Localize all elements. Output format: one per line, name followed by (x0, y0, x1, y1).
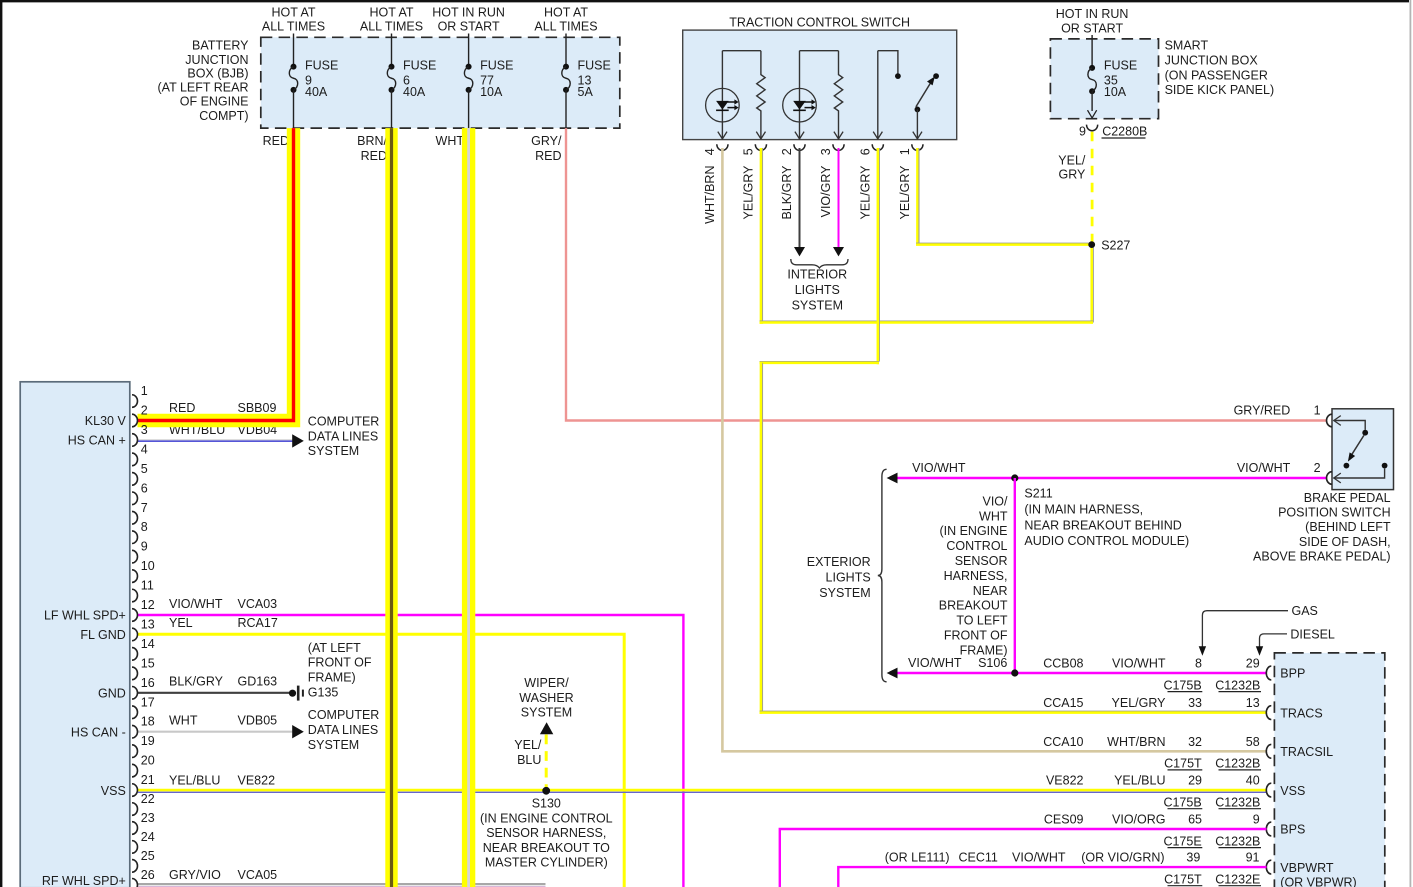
svg-text:3: 3 (819, 148, 833, 155)
svg-text:C2280B: C2280B (1102, 124, 1147, 138)
svg-text:(BEHIND LEFT: (BEHIND LEFT (1305, 520, 1391, 534)
svg-text:5A: 5A (578, 85, 594, 99)
svg-text:BPS: BPS (1280, 823, 1305, 837)
svg-text:15: 15 (141, 656, 155, 670)
svg-text:10A: 10A (480, 85, 503, 99)
svg-text:LF WHL SPD+: LF WHL SPD+ (44, 609, 126, 623)
svg-text:5: 5 (141, 462, 148, 476)
svg-text:SENSOR: SENSOR (955, 554, 1008, 568)
svg-text:G135: G135 (308, 685, 339, 699)
svg-text:SIDE KICK PANEL): SIDE KICK PANEL) (1165, 83, 1275, 97)
svg-text:VIO/WHT: VIO/WHT (1112, 657, 1166, 671)
svg-text:C1232B: C1232B (1215, 678, 1260, 692)
svg-text:WHT: WHT (979, 509, 1008, 523)
svg-text:C1232B: C1232B (1215, 757, 1260, 771)
svg-text:58: 58 (1246, 735, 1260, 749)
svg-text:MASTER CYLINDER): MASTER CYLINDER) (485, 856, 608, 870)
svg-text:FL GND: FL GND (80, 628, 125, 642)
svg-text:40A: 40A (305, 85, 328, 99)
svg-text:AUDIO CONTROL MODULE): AUDIO CONTROL MODULE) (1024, 534, 1189, 548)
svg-text:KL30 V: KL30 V (85, 414, 127, 428)
svg-text:C1232E: C1232E (1215, 872, 1260, 886)
svg-text:16: 16 (141, 676, 155, 690)
svg-text:VIO/WHT: VIO/WHT (1237, 461, 1291, 475)
svg-text:2: 2 (780, 148, 794, 155)
svg-text:11: 11 (141, 579, 154, 593)
svg-text:YEL/GRY: YEL/GRY (859, 165, 873, 220)
svg-text:INTERIOR: INTERIOR (787, 267, 847, 281)
svg-text:GRY/VIO: GRY/VIO (169, 868, 221, 882)
svg-text:NEAR: NEAR (973, 584, 1008, 598)
svg-text:TRACSIL: TRACSIL (1280, 745, 1333, 759)
svg-text:FUSE: FUSE (578, 58, 611, 72)
svg-text:JUNCTION: JUNCTION (185, 53, 248, 67)
svg-text:40: 40 (1246, 774, 1260, 788)
svg-text:(IN ENGINE: (IN ENGINE (939, 524, 1007, 538)
svg-text:SMART: SMART (1165, 39, 1209, 53)
svg-text:RCA17: RCA17 (238, 616, 278, 630)
svg-text:SYSTEM: SYSTEM (819, 586, 870, 600)
svg-text:(OR VIO/GRN): (OR VIO/GRN) (1081, 851, 1164, 865)
svg-text:(OR LE111): (OR LE111) (885, 851, 950, 865)
svg-text:COMPUTER: COMPUTER (308, 415, 380, 429)
svg-text:21: 21 (141, 773, 155, 787)
svg-text:WIPER/: WIPER/ (524, 676, 569, 690)
svg-text:CES09: CES09 (1044, 813, 1084, 827)
svg-text:VCA05: VCA05 (238, 868, 278, 882)
svg-text:23: 23 (141, 811, 155, 825)
svg-text:(AT LEFT REAR: (AT LEFT REAR (158, 81, 249, 95)
svg-text:14: 14 (141, 637, 155, 651)
svg-text:40A: 40A (403, 85, 426, 99)
svg-text:18: 18 (141, 715, 155, 729)
svg-text:6: 6 (859, 148, 873, 155)
svg-text:HOT AT: HOT AT (272, 5, 316, 19)
svg-text:S211: S211 (1024, 487, 1052, 501)
svg-text:VIO/WHT: VIO/WHT (912, 461, 966, 475)
svg-text:RF WHL SPD+: RF WHL SPD+ (42, 874, 126, 887)
svg-text:(AT LEFT: (AT LEFT (308, 641, 361, 655)
svg-text:RED: RED (361, 149, 387, 163)
svg-text:1: 1 (1314, 404, 1321, 418)
svg-text:9: 9 (1253, 813, 1260, 827)
svg-text:YEL/: YEL/ (1058, 153, 1086, 167)
svg-text:4: 4 (703, 148, 717, 155)
svg-text:C175E: C175E (1163, 834, 1201, 848)
svg-text:YEL: YEL (169, 616, 193, 630)
svg-text:32: 32 (1188, 735, 1202, 749)
svg-text:HS CAN +: HS CAN + (68, 434, 126, 448)
svg-text:SIDE OF DASH,: SIDE OF DASH, (1299, 535, 1391, 549)
svg-text:C175B: C175B (1163, 678, 1201, 692)
svg-text:2: 2 (1314, 461, 1321, 475)
svg-text:CCA10: CCA10 (1043, 735, 1083, 749)
svg-text:VIO/ORG: VIO/ORG (1112, 813, 1165, 827)
svg-text:COMPUTER: COMPUTER (308, 708, 380, 722)
svg-text:FUSE: FUSE (305, 58, 338, 72)
svg-text:9: 9 (141, 540, 148, 554)
svg-text:RED: RED (263, 134, 289, 148)
svg-text:HOT IN RUN: HOT IN RUN (432, 5, 505, 19)
svg-text:8: 8 (141, 520, 148, 534)
svg-text:TRACS: TRACS (1280, 706, 1322, 720)
svg-text:3: 3 (141, 423, 148, 437)
svg-text:1: 1 (141, 384, 148, 398)
svg-text:VCA03: VCA03 (238, 597, 278, 611)
svg-text:VIO/WHT: VIO/WHT (169, 597, 223, 611)
svg-text:OR START: OR START (438, 20, 500, 34)
svg-text:SBB09: SBB09 (238, 401, 277, 415)
svg-text:HARNESS,: HARNESS, (944, 569, 1008, 583)
svg-text:6: 6 (141, 481, 148, 495)
svg-text:2: 2 (141, 404, 148, 418)
svg-text:29: 29 (1246, 657, 1260, 671)
svg-text:GND: GND (98, 687, 126, 701)
svg-text:SENSOR HARNESS,: SENSOR HARNESS, (486, 826, 606, 840)
svg-text:CCA15: CCA15 (1043, 696, 1083, 710)
svg-text:S106: S106 (978, 656, 1007, 670)
svg-text:13: 13 (141, 617, 155, 631)
svg-text:GD163: GD163 (238, 675, 278, 689)
svg-text:VSS: VSS (1280, 784, 1305, 798)
svg-text:CONTROL: CONTROL (946, 539, 1007, 553)
svg-text:NEAR BREAKOUT TO: NEAR BREAKOUT TO (483, 841, 610, 855)
svg-text:BRAKE PEDAL: BRAKE PEDAL (1304, 491, 1391, 505)
svg-text:VBPWRT: VBPWRT (1280, 861, 1334, 875)
svg-text:(ON PASSENGER: (ON PASSENGER (1165, 68, 1268, 82)
svg-text:(IN MAIN HARNESS,: (IN MAIN HARNESS, (1024, 503, 1143, 517)
svg-text:(IN ENGINE CONTROL: (IN ENGINE CONTROL (480, 811, 613, 825)
svg-text:DATA LINES: DATA LINES (308, 429, 378, 443)
svg-text:OF ENGINE: OF ENGINE (180, 95, 249, 109)
svg-text:BLK/GRY: BLK/GRY (780, 165, 794, 220)
svg-text:CEC11: CEC11 (959, 851, 998, 865)
svg-text:S227: S227 (1101, 238, 1130, 252)
svg-text:CCB08: CCB08 (1043, 657, 1083, 671)
svg-text:DIESEL: DIESEL (1290, 627, 1335, 641)
svg-text:5: 5 (742, 148, 756, 155)
svg-text:FUSE: FUSE (480, 58, 513, 72)
svg-text:SYSTEM: SYSTEM (521, 706, 572, 720)
svg-text:19: 19 (141, 734, 155, 748)
svg-text:ABOVE BRAKE PEDAL): ABOVE BRAKE PEDAL) (1253, 549, 1391, 563)
svg-text:GRY: GRY (1059, 168, 1087, 182)
svg-text:HS CAN -: HS CAN - (71, 725, 126, 739)
svg-text:C175T: C175T (1164, 872, 1202, 886)
svg-text:HOT AT: HOT AT (544, 5, 588, 19)
svg-text:C1232B: C1232B (1215, 795, 1260, 809)
svg-text:(OR VBPWR): (OR VBPWR) (1280, 875, 1356, 887)
svg-text:25: 25 (141, 849, 155, 863)
svg-text:WHT: WHT (169, 714, 198, 728)
svg-text:BLU: BLU (517, 753, 541, 767)
svg-text:17: 17 (141, 695, 155, 709)
svg-text:VDB05: VDB05 (238, 714, 278, 728)
svg-text:8: 8 (1195, 657, 1202, 671)
svg-text:BREAKOUT: BREAKOUT (939, 599, 1008, 613)
svg-text:HOT IN RUN: HOT IN RUN (1056, 7, 1129, 21)
svg-text:SYSTEM: SYSTEM (308, 444, 359, 458)
svg-text:FRONT OF: FRONT OF (308, 656, 372, 670)
svg-text:4: 4 (141, 442, 148, 456)
svg-text:SYSTEM: SYSTEM (308, 738, 359, 752)
svg-text:GRY/: GRY/ (531, 134, 562, 148)
svg-text:DATA LINES: DATA LINES (308, 723, 378, 737)
svg-text:7: 7 (141, 501, 148, 515)
svg-text:S130: S130 (532, 797, 561, 811)
svg-text:RED: RED (169, 401, 195, 415)
svg-text:BPP: BPP (1280, 667, 1305, 681)
svg-text:YEL/BLU: YEL/BLU (169, 774, 220, 788)
svg-text:FUSE: FUSE (403, 58, 436, 72)
svg-text:BLK/GRY: BLK/GRY (169, 675, 224, 689)
svg-text:20: 20 (141, 754, 155, 768)
svg-text:ALL TIMES: ALL TIMES (534, 20, 597, 34)
svg-text:10: 10 (141, 559, 155, 573)
svg-text:65: 65 (1188, 813, 1202, 827)
svg-text:BOX (BJB): BOX (BJB) (187, 67, 248, 81)
svg-text:POSITION SWITCH: POSITION SWITCH (1278, 506, 1391, 520)
svg-text:OR START: OR START (1061, 22, 1123, 36)
svg-text:C175T: C175T (1164, 757, 1202, 771)
svg-text:YEL/: YEL/ (514, 738, 542, 752)
svg-text:YEL/GRY: YEL/GRY (898, 165, 912, 220)
svg-text:ALL TIMES: ALL TIMES (360, 20, 423, 34)
svg-text:SYSTEM: SYSTEM (792, 298, 843, 312)
svg-text:VSS: VSS (101, 784, 126, 798)
svg-text:29: 29 (1188, 774, 1202, 788)
svg-text:HOT AT: HOT AT (370, 5, 414, 19)
svg-text:YEL/GRY: YEL/GRY (742, 165, 756, 220)
svg-text:22: 22 (141, 792, 155, 806)
svg-text:GRY/RED: GRY/RED (1234, 404, 1291, 418)
svg-text:TO LEFT: TO LEFT (956, 614, 1008, 628)
svg-text:24: 24 (141, 830, 155, 844)
svg-text:FRAME): FRAME) (308, 671, 356, 685)
svg-text:VE822: VE822 (1046, 774, 1084, 788)
svg-text:EXTERIOR: EXTERIOR (807, 555, 871, 569)
svg-text:9: 9 (1079, 124, 1086, 138)
svg-text:NEAR BREAKOUT BEHIND: NEAR BREAKOUT BEHIND (1024, 519, 1181, 533)
svg-text:10A: 10A (1104, 85, 1127, 99)
svg-text:39: 39 (1186, 851, 1200, 865)
svg-text:VE822: VE822 (238, 774, 276, 788)
svg-text:WASHER: WASHER (519, 691, 573, 705)
svg-text:YEL/GRY: YEL/GRY (1112, 696, 1167, 710)
svg-text:33: 33 (1188, 696, 1202, 710)
svg-text:FRONT OF: FRONT OF (944, 629, 1008, 643)
svg-text:TRACTION CONTROL SWITCH: TRACTION CONTROL SWITCH (729, 15, 910, 29)
svg-text:LIGHTS: LIGHTS (826, 571, 871, 585)
svg-text:JUNCTION BOX: JUNCTION BOX (1165, 54, 1259, 68)
svg-text:ALL TIMES: ALL TIMES (262, 20, 325, 34)
svg-text:FUSE: FUSE (1104, 58, 1137, 72)
svg-text:WHT: WHT (436, 134, 465, 148)
svg-text:26: 26 (141, 868, 155, 882)
svg-text:VIO/WHT: VIO/WHT (1012, 851, 1066, 865)
svg-text:RED: RED (535, 149, 561, 163)
svg-text:91: 91 (1246, 851, 1260, 865)
svg-text:VIO/: VIO/ (982, 494, 1008, 508)
svg-text:LIGHTS: LIGHTS (795, 283, 840, 297)
svg-text:GAS: GAS (1292, 604, 1318, 618)
svg-text:WHT/BRN: WHT/BRN (1107, 735, 1165, 749)
svg-text:1: 1 (898, 148, 912, 155)
svg-text:BATTERY: BATTERY (192, 38, 249, 52)
svg-text:COMPT): COMPT) (199, 109, 248, 123)
svg-text:BRN/: BRN/ (357, 134, 387, 148)
svg-text:13: 13 (1246, 696, 1260, 710)
svg-text:C1232B: C1232B (1215, 834, 1260, 848)
svg-text:WHT/BRN: WHT/BRN (703, 166, 717, 224)
svg-text:C175B: C175B (1163, 795, 1201, 809)
svg-text:YEL/BLU: YEL/BLU (1114, 774, 1165, 788)
svg-text:12: 12 (141, 598, 155, 612)
svg-text:VIO/GRY: VIO/GRY (819, 165, 833, 218)
svg-text:VIO/WHT: VIO/WHT (908, 656, 962, 670)
